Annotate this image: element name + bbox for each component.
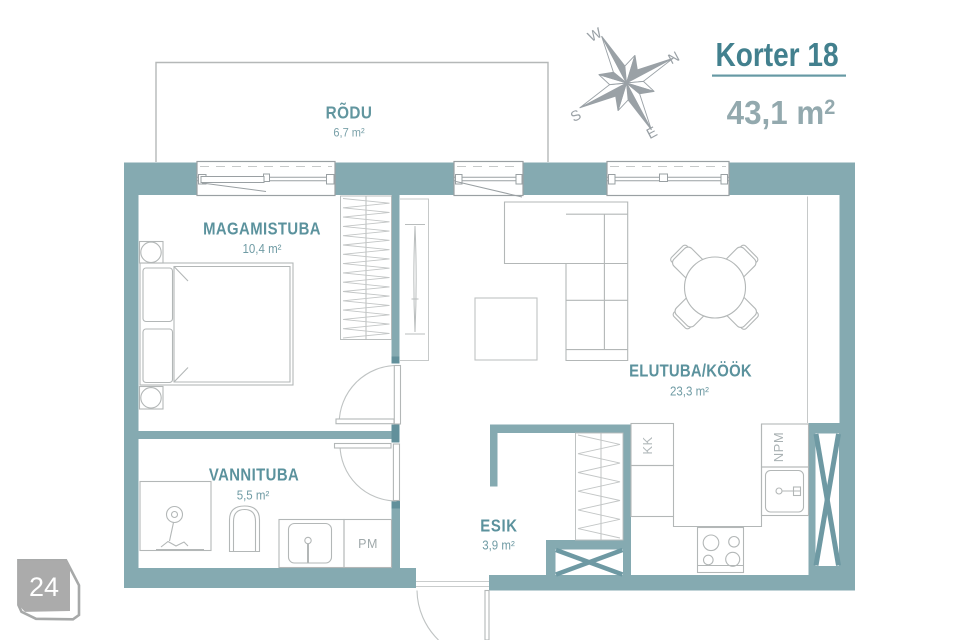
svg-text:Korter 18: Korter 18 — [715, 37, 838, 74]
svg-text:ELUTUBA/KÖÖK: ELUTUBA/KÖÖK — [629, 360, 752, 380]
svg-text:E: E — [644, 124, 660, 143]
svg-text:W: W — [585, 25, 605, 46]
svg-text:24: 24 — [29, 572, 59, 602]
svg-text:NPM: NPM — [771, 432, 786, 462]
svg-text:RÕDU: RÕDU — [326, 101, 373, 123]
svg-text:S: S — [568, 107, 584, 126]
svg-text:N: N — [666, 49, 683, 68]
svg-text:10,4 m²: 10,4 m² — [243, 242, 282, 257]
svg-text:ESIK: ESIK — [480, 516, 517, 535]
svg-text:43,1 m2: 43,1 m2 — [727, 94, 836, 131]
svg-text:6,7 m²: 6,7 m² — [333, 127, 364, 139]
svg-text:MAGAMISTUBA: MAGAMISTUBA — [203, 219, 321, 238]
svg-text:VANNITUBA: VANNITUBA — [209, 465, 299, 484]
svg-text:KK: KK — [640, 436, 655, 454]
svg-text:3,9 m²: 3,9 m² — [482, 538, 515, 553]
svg-text:PM: PM — [358, 537, 378, 551]
svg-text:23,3 m²: 23,3 m² — [670, 384, 709, 399]
svg-text:5,5 m²: 5,5 m² — [237, 488, 270, 503]
